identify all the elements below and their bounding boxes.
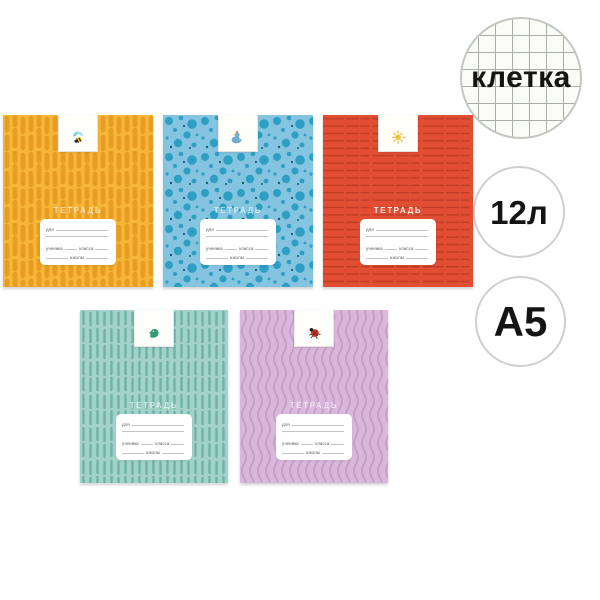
badge-sheet-count-label: 12л (490, 196, 548, 229)
notebook-yellow: ТЕТРАДЬ для ученика класса школы (3, 115, 153, 287)
writing-line (246, 258, 268, 259)
cover-tab (294, 310, 334, 347)
writing-line (46, 258, 68, 259)
badge-paper-type-kletka: клетка (460, 17, 582, 139)
writing-line (225, 249, 238, 250)
label-line-blank (122, 431, 186, 433)
notebook-blue: ТЕТРАДЬ для ученика класса школы (163, 115, 313, 287)
writing-line (282, 431, 344, 432)
name-label-card: для ученика класса школы (200, 219, 276, 265)
writing-line (86, 258, 108, 259)
writing-line (406, 258, 428, 259)
writing-line (331, 444, 344, 445)
notebook-teal: ТЕТРАДЬ для ученика класса школы (80, 310, 228, 483)
label-line-school: школы (46, 255, 110, 260)
badge-format-label: А5 (494, 301, 548, 343)
notebook-red: ТЕТРАДЬ для ученика класса школы (323, 115, 473, 287)
writing-line (65, 249, 78, 250)
writing-line (122, 431, 184, 432)
writing-line (95, 249, 108, 250)
label-line-student-class: ученика класса (122, 441, 186, 446)
label-line-for: для (122, 422, 186, 427)
label-line-for: для (206, 227, 270, 232)
name-label-card: для ученика класса школы (40, 219, 116, 265)
name-label-card: для ученика класса школы (360, 219, 436, 265)
writing-line (322, 453, 344, 454)
label-line-blank (366, 236, 430, 238)
ladybug-icon (304, 322, 324, 341)
label-line-student-class: ученика класса (282, 441, 346, 446)
writing-line (132, 425, 184, 426)
writing-line (162, 453, 184, 454)
label-line-for: для (282, 422, 346, 427)
label-line-school: школы (282, 450, 346, 455)
writing-line (366, 236, 428, 237)
badge-sheet-count: 12л (473, 166, 565, 258)
writing-line (206, 236, 268, 237)
notebook-title: ТЕТРАДЬ (323, 206, 473, 215)
writing-line (56, 230, 108, 231)
notebook-title: ТЕТРАДЬ (240, 401, 388, 410)
writing-line (376, 230, 428, 231)
sun-icon (388, 127, 408, 146)
cover-tab (378, 115, 418, 152)
name-label-card: для ученика класса школы (116, 414, 192, 460)
notebook-title: ТЕТРАДЬ (80, 401, 228, 410)
bee-icon (68, 128, 88, 146)
product-image: клетка 12л А5 (0, 0, 600, 600)
crowned-bird-icon (228, 127, 248, 146)
writing-line (255, 249, 268, 250)
label-line-school: школы (206, 255, 270, 260)
label-line-blank (46, 236, 110, 238)
writing-line (216, 230, 268, 231)
writing-line (301, 444, 314, 445)
label-line-school: школы (366, 255, 430, 260)
writing-line (171, 444, 184, 445)
label-line-school: школы (122, 450, 186, 455)
writing-line (415, 249, 428, 250)
writing-line (282, 453, 304, 454)
writing-line (366, 258, 388, 259)
notebook-title: ТЕТРАДЬ (3, 206, 153, 215)
label-line-blank (206, 236, 270, 238)
writing-line (206, 258, 228, 259)
green-bird-icon (144, 323, 164, 341)
writing-line (385, 249, 398, 250)
label-line-for: для (46, 227, 110, 232)
notebook-title: ТЕТРАДЬ (163, 206, 313, 215)
writing-line (292, 425, 344, 426)
cover-tab (58, 115, 98, 152)
name-label-card: для ученика класса школы (276, 414, 352, 460)
writing-line (122, 453, 144, 454)
label-line-for: для (366, 227, 430, 232)
badge-paper-type-label: клетка (471, 63, 571, 93)
badge-format-a5: А5 (475, 276, 566, 367)
notebook-lilac: ТЕТРАДЬ для ученика класса школы (240, 310, 388, 483)
cover-tab (218, 115, 258, 152)
cover-tab (134, 310, 174, 347)
label-line-student-class: ученика класса (46, 246, 110, 251)
writing-line (141, 444, 154, 445)
writing-line (46, 236, 108, 237)
label-line-student-class: ученика класса (206, 246, 270, 251)
label-line-student-class: ученика класса (366, 246, 430, 251)
label-line-blank (282, 431, 346, 433)
